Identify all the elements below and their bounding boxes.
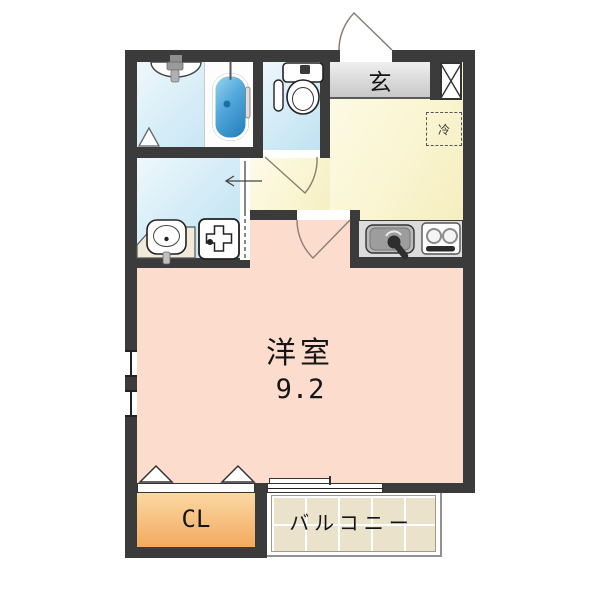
balcony-window-handle	[329, 476, 331, 485]
balcony-window	[267, 483, 383, 493]
wall-kitchen-counter-bottom	[358, 258, 463, 268]
balcony-label: バルコニー	[265, 506, 438, 536]
left-window-upper-glass-line	[130, 352, 132, 375]
wall-bath-washroom-divider	[125, 147, 263, 158]
wall-entrance-shaft	[430, 62, 440, 100]
wall-washroom-bottom	[125, 258, 250, 268]
kitchen-counter	[358, 220, 463, 258]
bathtub-niche	[204, 62, 254, 147]
wall-top	[125, 50, 475, 62]
main-room-size: 9.2	[137, 372, 463, 406]
closet-label: CL	[137, 493, 255, 545]
main-room-floor-upper	[250, 220, 350, 268]
toilet-room-floor	[263, 62, 320, 150]
entrance-door-opening	[340, 50, 392, 62]
refrigerator-label: 冷	[426, 112, 462, 146]
wall-bottom-left	[125, 547, 267, 558]
left-window-lower-glass-line	[130, 392, 132, 415]
pipe-shaft-box	[440, 62, 462, 100]
floor-plan: 玄 冷 洋室 9.2 CL バルコニー	[0, 0, 600, 600]
entrance-label: 玄	[330, 62, 430, 98]
left-window-upper	[125, 350, 137, 377]
sliding-door-track	[240, 158, 250, 260]
entrance-door-arc-icon	[339, 13, 392, 50]
closet-folding-door	[137, 483, 255, 493]
wall-hall-main	[250, 210, 297, 220]
room-door-opening	[297, 210, 350, 220]
toilet-door-opening	[265, 150, 317, 158]
balcony-window-glass-line	[268, 488, 382, 490]
wall-left	[125, 50, 137, 558]
wall-toilet-left	[253, 62, 263, 158]
wall-bottom-right	[383, 483, 475, 493]
wall-toilet-right	[320, 62, 330, 158]
wall-right	[463, 50, 475, 493]
main-room-label: 洋室	[137, 330, 463, 370]
washroom-floor	[137, 158, 240, 258]
left-window-lower	[125, 390, 137, 417]
balcony-window-sash	[269, 478, 331, 484]
